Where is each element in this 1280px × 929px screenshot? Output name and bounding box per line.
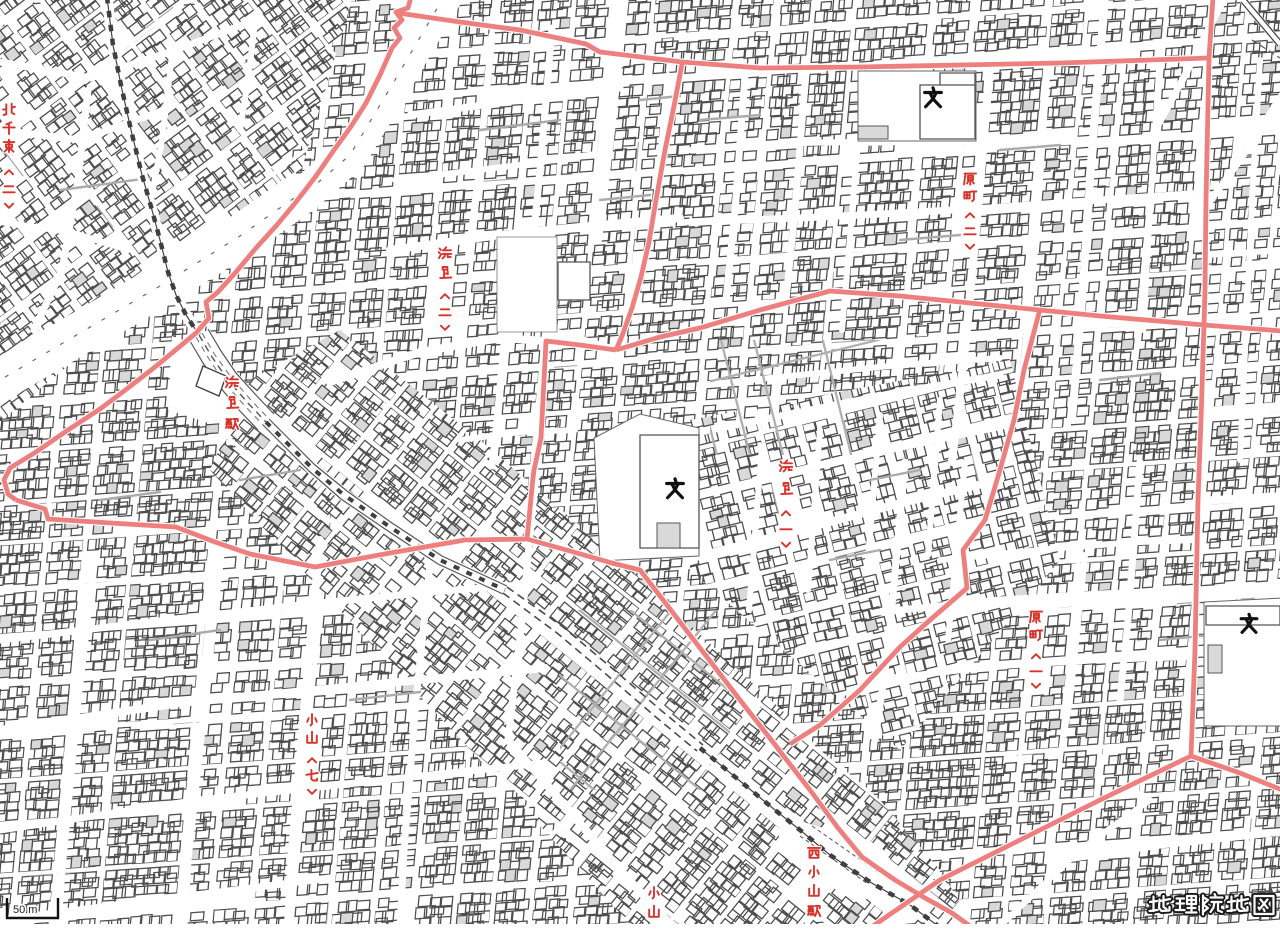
svg-text:50 m: 50 m xyxy=(13,904,37,916)
